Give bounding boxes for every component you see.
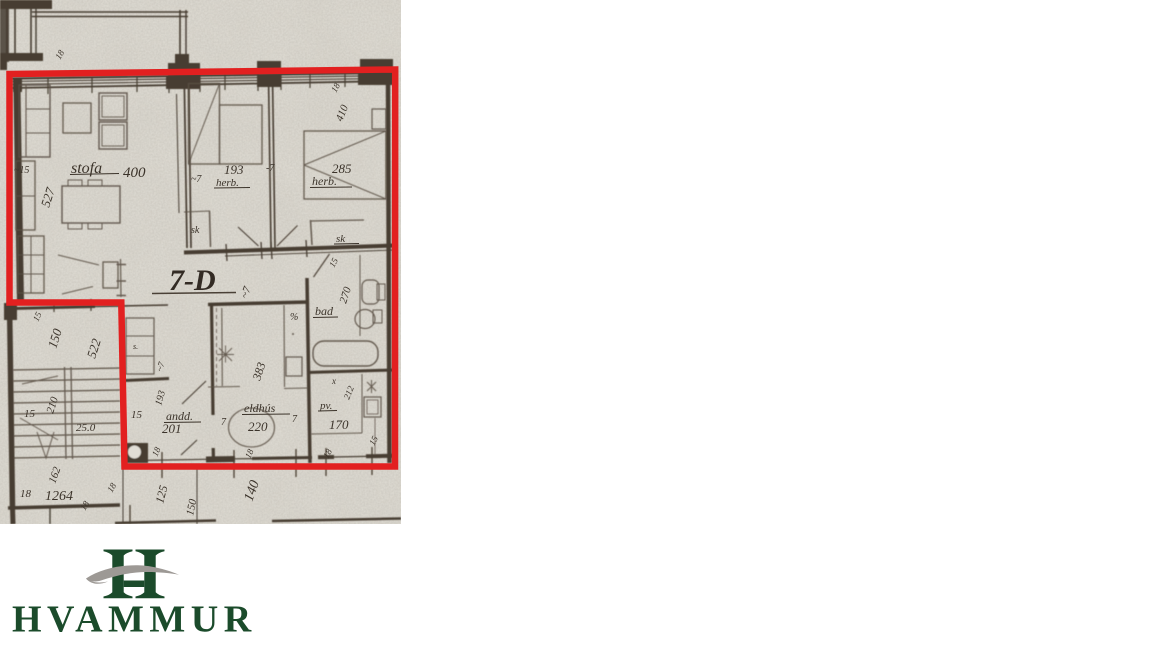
svg-text:400: 400 — [123, 165, 146, 181]
svg-text:170: 170 — [329, 417, 349, 432]
svg-text:~7: ~7 — [191, 174, 202, 185]
svg-text:eldhús: eldhús — [244, 401, 276, 415]
svg-text:1264: 1264 — [45, 489, 73, 504]
svg-text:sk: sk — [336, 233, 346, 245]
svg-text:herb.: herb. — [216, 177, 239, 189]
svg-text:193: 193 — [224, 162, 244, 177]
svg-text:~15: ~15 — [14, 165, 29, 176]
svg-text:bad: bad — [315, 304, 334, 318]
svg-text:18: 18 — [20, 488, 32, 500]
svg-text:220: 220 — [248, 419, 268, 434]
svg-text:s.: s. — [133, 342, 138, 351]
svg-text:15: 15 — [131, 409, 143, 421]
svg-text:25.0: 25.0 — [76, 422, 96, 434]
svg-text:201: 201 — [162, 421, 182, 436]
svg-text:%: % — [290, 312, 298, 323]
svg-text:sk: sk — [191, 225, 200, 236]
svg-text:x: x — [331, 376, 336, 386]
svg-text:15: 15 — [24, 408, 36, 420]
svg-text:-7: -7 — [266, 163, 275, 174]
svg-text:HVAMMUR: HVAMMUR — [12, 599, 257, 641]
svg-text:herb.: herb. — [312, 174, 337, 188]
